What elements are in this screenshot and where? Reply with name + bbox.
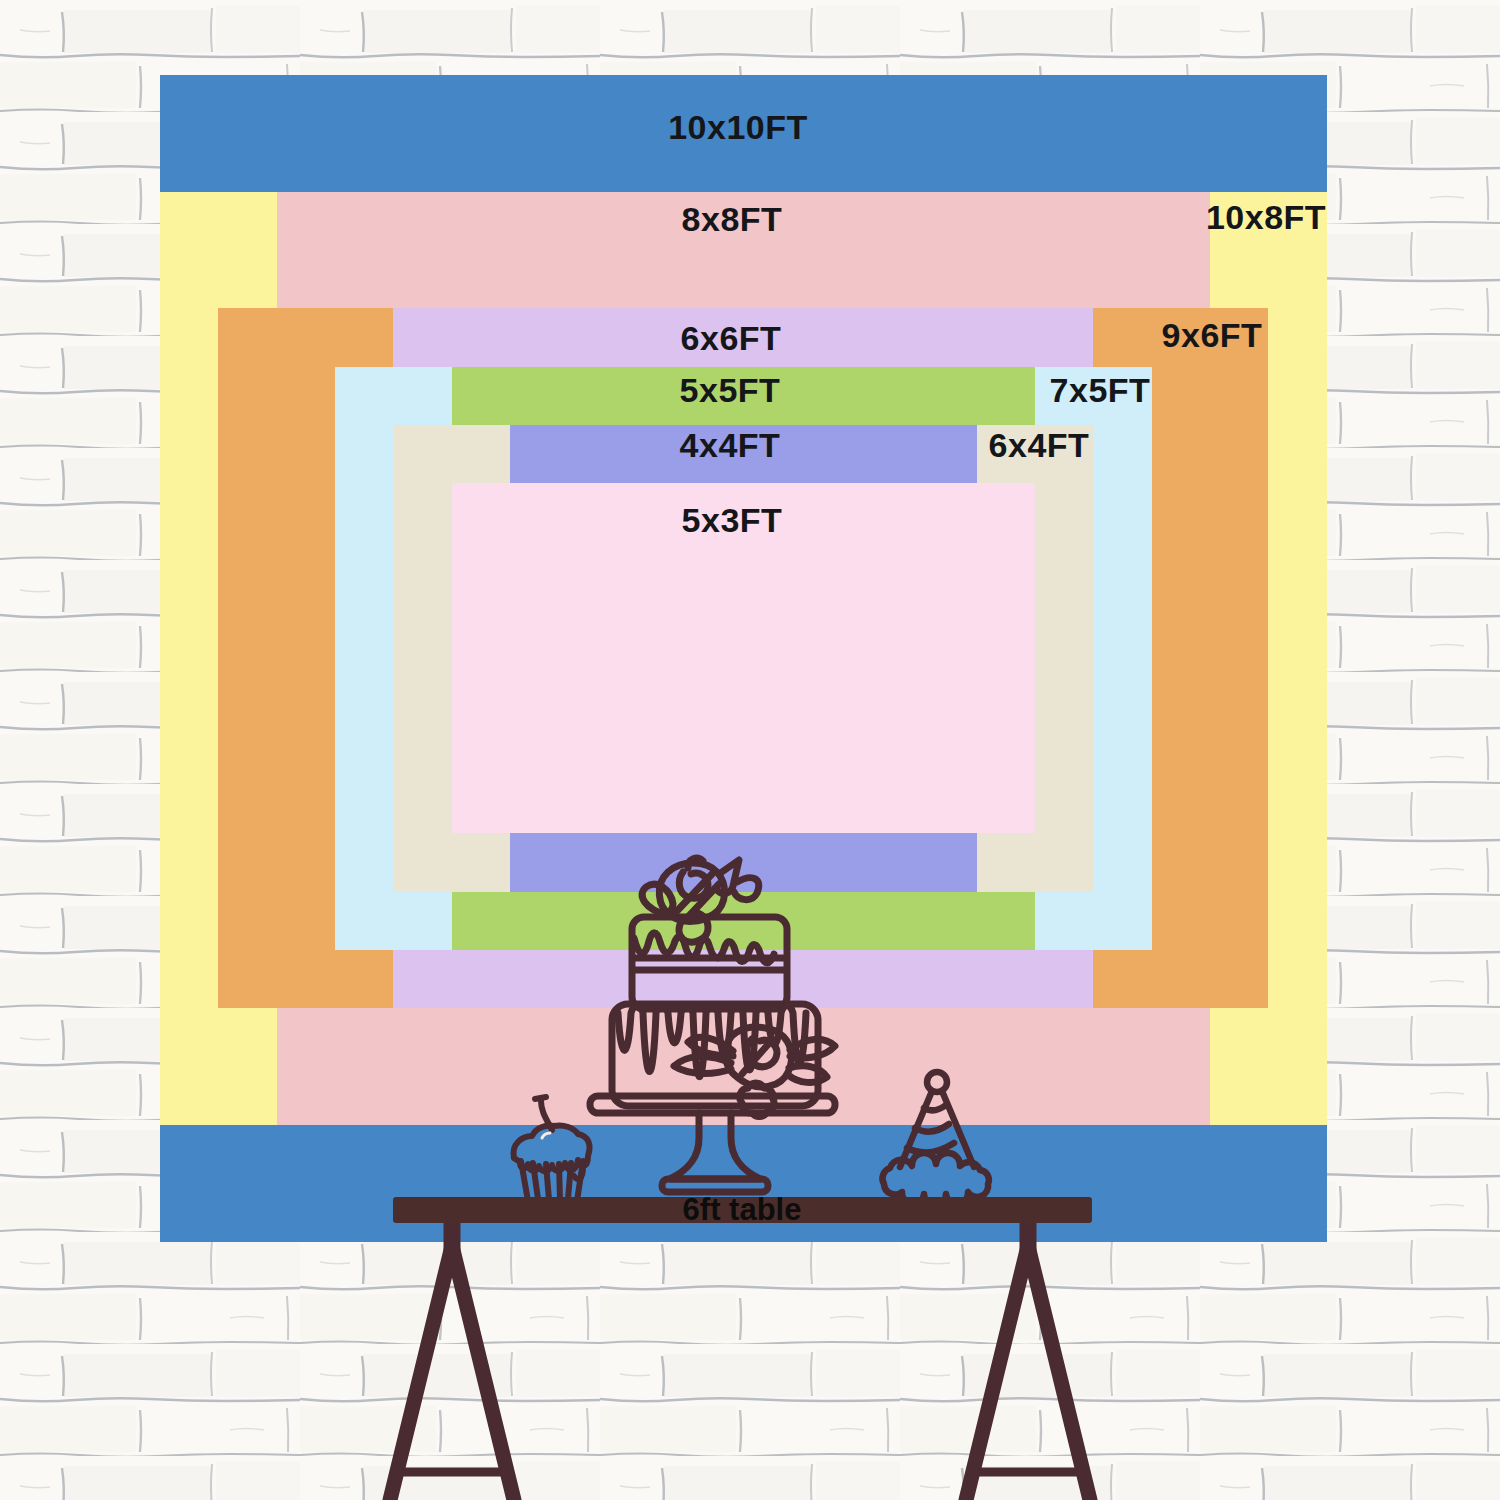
size-label-8x8: 8x8FT (682, 200, 783, 239)
table-length-label: 6ft table (683, 1192, 802, 1228)
size-label-5x5: 5x5FT (680, 371, 781, 410)
size-label-10x8: 10x8FT (1206, 198, 1326, 237)
size-label-9x6: 9x6FT (1162, 316, 1263, 355)
size-label-10x10: 10x10FT (668, 108, 808, 147)
size-label-6x4: 6x4FT (989, 426, 1090, 465)
size-label-6x6: 6x6FT (681, 319, 782, 358)
size-label-4x4: 4x4FT (680, 426, 781, 465)
size-label-7x5: 7x5FT (1050, 371, 1151, 410)
size-label-5x3: 5x3FT (682, 501, 783, 540)
